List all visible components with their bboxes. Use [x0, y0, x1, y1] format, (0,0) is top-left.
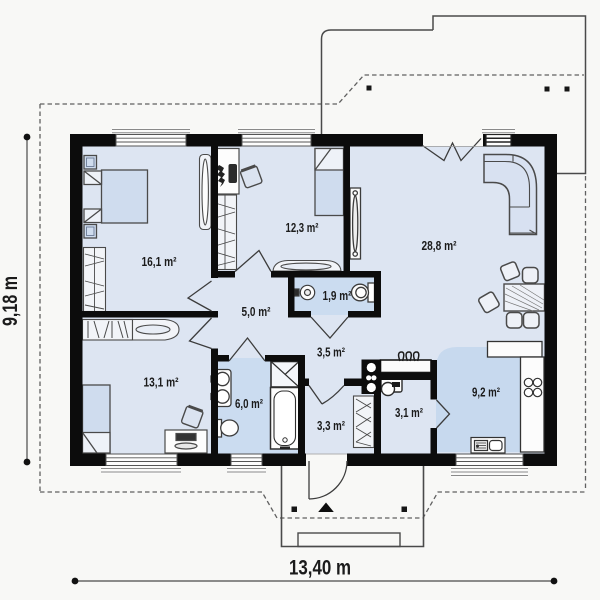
svg-text:6,0 m²: 6,0 m²	[235, 397, 263, 411]
svg-text:1,9 m²: 1,9 m²	[323, 289, 352, 303]
svg-text:28,8 m²: 28,8 m²	[422, 239, 457, 253]
svg-text:9,18 m: 9,18 m	[0, 276, 22, 326]
svg-text:3,3 m²: 3,3 m²	[317, 419, 345, 433]
svg-text:16,1 m²: 16,1 m²	[142, 255, 177, 269]
svg-text:12,3 m²: 12,3 m²	[286, 221, 319, 235]
svg-text:5,0 m²: 5,0 m²	[242, 305, 271, 319]
svg-text:13,40 m: 13,40 m	[289, 557, 351, 580]
svg-text:9,2 m²: 9,2 m²	[472, 386, 500, 400]
svg-text:13,1 m²: 13,1 m²	[144, 376, 179, 390]
svg-text:3,1 m²: 3,1 m²	[395, 406, 423, 420]
svg-text:3,5 m²: 3,5 m²	[317, 346, 345, 360]
